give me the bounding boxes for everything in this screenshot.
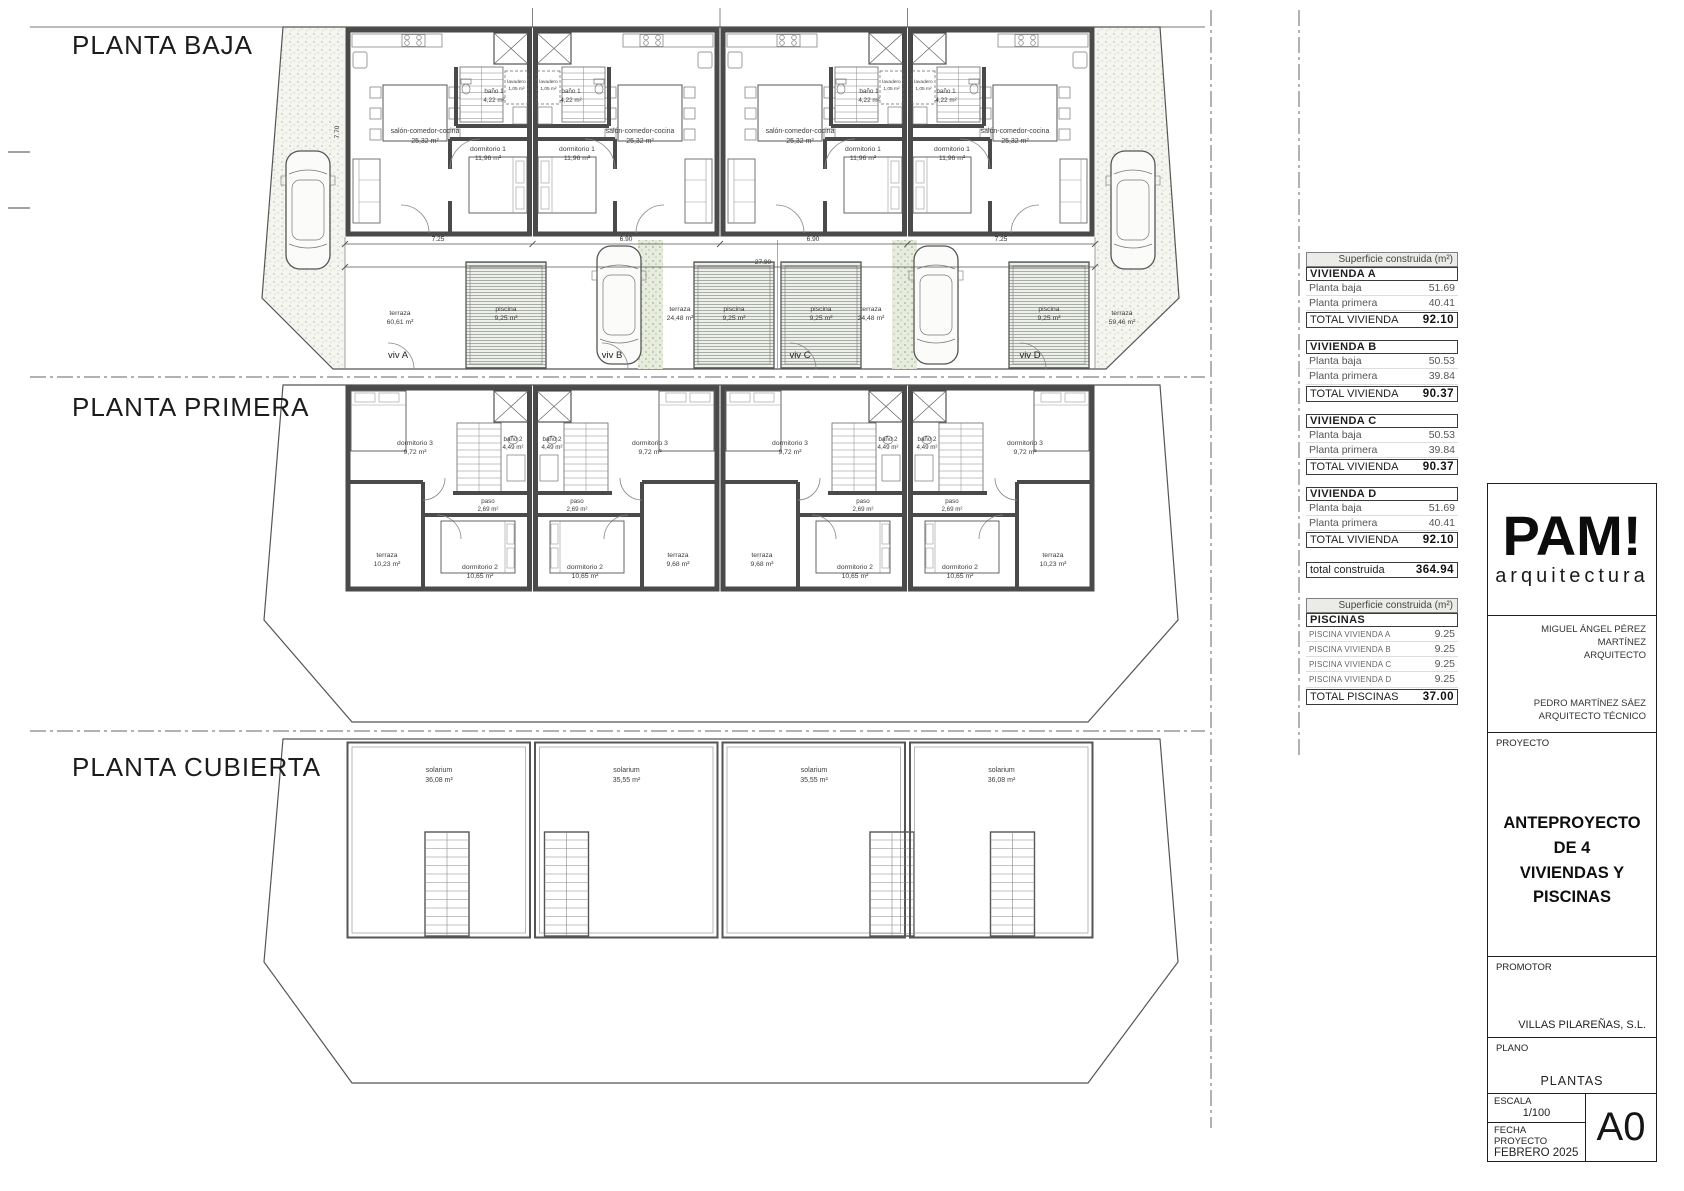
vivienda-title: VIVIENDA B bbox=[1306, 340, 1458, 354]
terraza-area-label: 24,48 m² bbox=[667, 315, 695, 322]
title-block: PAM! arquitectura MIGUEL ÁNGEL PÉREZ MAR… bbox=[1487, 483, 1657, 1162]
area-table-row: Planta primera39.84 bbox=[1306, 443, 1458, 458]
row-value: 51.69 bbox=[1429, 502, 1455, 515]
scale-date-column: ESCALA 1/100 FECHA PROYECTO FEBRERO 2025 bbox=[1488, 1094, 1586, 1161]
fecha-cell: FECHA PROYECTO FEBRERO 2025 bbox=[1488, 1123, 1585, 1161]
room-label: 25,32 m² bbox=[786, 138, 814, 145]
room-label: dormitorio 1 bbox=[559, 146, 595, 153]
room-label: dormitorio 2 bbox=[942, 564, 978, 571]
architect-1: MIGUEL ÁNGEL PÉREZ MARTÍNEZ ARQUITECTO bbox=[1498, 624, 1646, 662]
room-label: dormitorio 2 bbox=[567, 564, 603, 571]
plano-section: PLANO PLANTAS bbox=[1488, 1038, 1656, 1094]
sheet-format: A0 bbox=[1586, 1094, 1656, 1161]
row-value: 39.84 bbox=[1429, 444, 1455, 457]
row-value: 9.25 bbox=[1435, 673, 1455, 686]
room-label: 10,23 m² bbox=[1040, 561, 1068, 568]
promotor-label: PROMOTOR bbox=[1496, 962, 1648, 973]
pool-area-label: 9,25 m² bbox=[809, 315, 833, 322]
proyecto-label: PROYECTO bbox=[1496, 738, 1648, 749]
surface-tables-column: Superficie construida (m²)VIVIENDA APlan… bbox=[1306, 252, 1458, 705]
pam-logo: PAM! bbox=[1503, 511, 1642, 561]
area-table-row: Planta baja50.53 bbox=[1306, 354, 1458, 369]
room-label: terraza bbox=[376, 552, 397, 559]
pam-logo-subtitle: arquitectura bbox=[1495, 565, 1649, 588]
room-label: 9,72 m² bbox=[638, 449, 662, 456]
terraza-label: terraza bbox=[389, 310, 410, 317]
escala-cell: ESCALA 1/100 bbox=[1488, 1094, 1585, 1123]
pool-label: piscina bbox=[1038, 306, 1059, 313]
dimension-label: 7.25 bbox=[995, 236, 1008, 243]
room-label: 25,32 m² bbox=[626, 138, 654, 145]
room-label: 9,68 m² bbox=[750, 561, 774, 568]
viv-label: viv C bbox=[789, 350, 810, 361]
room-label: 9,72 m² bbox=[778, 449, 802, 456]
room-label: 4,49 m² bbox=[878, 444, 899, 451]
room-label: baño 1 bbox=[484, 88, 504, 95]
table-header: Superficie construida (m²) bbox=[1306, 598, 1458, 613]
architect-2-name: PEDRO MARTÍNEZ SÁEZ bbox=[1534, 698, 1646, 711]
piscinas-title: PISCINAS bbox=[1306, 613, 1458, 627]
terraza-label: terraza bbox=[860, 306, 881, 313]
plan-title-cubierta: PLANTA CUBIERTA bbox=[72, 752, 321, 783]
row-value: 50.53 bbox=[1429, 355, 1455, 368]
row-label: Planta primera bbox=[1309, 444, 1377, 457]
plan-title-primera: PLANTA PRIMERA bbox=[72, 392, 309, 423]
row-label: PISCINA VIVIENDA D bbox=[1309, 673, 1391, 686]
room-label: 2,69 m² bbox=[478, 506, 499, 513]
room-label: 4,22 m² bbox=[858, 97, 879, 104]
room-label: 2,69 m² bbox=[853, 506, 874, 513]
room-label: 11,96 m² bbox=[939, 155, 966, 162]
total-piscinas-row: TOTAL PISCINAS37.00 bbox=[1306, 689, 1458, 705]
lawn-strip bbox=[892, 240, 917, 369]
row-label: Planta baja bbox=[1309, 502, 1362, 515]
room-label: 10,65 m² bbox=[842, 573, 870, 580]
logo-section: PAM! arquitectura bbox=[1488, 484, 1656, 616]
room-label: 10,65 m² bbox=[572, 573, 600, 580]
room-label: 9,68 m² bbox=[666, 561, 690, 568]
row-value: 9.25 bbox=[1435, 628, 1455, 641]
room-label: 2,69 m² bbox=[567, 506, 588, 513]
total-label: TOTAL VIVIENDA bbox=[1310, 534, 1398, 546]
dimension-label: 6.90 bbox=[620, 236, 633, 243]
terraza-label: terraza bbox=[1111, 310, 1132, 317]
room-label: 10,65 m² bbox=[467, 573, 495, 580]
room-label: baño 1 bbox=[561, 88, 581, 95]
architects-section: MIGUEL ÁNGEL PÉREZ MARTÍNEZ ARQUITECTO P… bbox=[1488, 616, 1656, 733]
room-label: lavadero bbox=[539, 79, 558, 85]
room-label: 4,49 m² bbox=[503, 444, 524, 451]
room-label: dormitorio 1 bbox=[934, 146, 970, 153]
solarium-area-label: 36,08 m² bbox=[425, 777, 453, 784]
total-construida-row: total construida364.94 bbox=[1306, 562, 1458, 578]
room-label: 10,23 m² bbox=[374, 561, 402, 568]
total-label: TOTAL VIVIENDA bbox=[1310, 388, 1398, 400]
row-value: 9.25 bbox=[1435, 643, 1455, 656]
dimension-label: 7.25 bbox=[432, 236, 445, 243]
room-label: dormitorio 1 bbox=[845, 146, 881, 153]
dimension-label: 7.70 bbox=[334, 125, 341, 138]
total-piscinas-label: TOTAL PISCINAS bbox=[1310, 691, 1398, 703]
car bbox=[281, 151, 335, 269]
architect-2: PEDRO MARTÍNEZ SÁEZ ARQUITECTO TÉCNICO bbox=[1534, 698, 1646, 724]
room-label: 4,22 m² bbox=[560, 97, 581, 104]
architect-1-name: MIGUEL ÁNGEL PÉREZ MARTÍNEZ bbox=[1498, 624, 1646, 650]
room-label: 9,72 m² bbox=[1013, 449, 1037, 456]
terraza-area-label: 59,46 m² bbox=[1109, 319, 1137, 326]
area-table-row: Planta baja51.69 bbox=[1306, 501, 1458, 516]
room-label: 1,05 m² bbox=[883, 86, 900, 92]
room-label: 25,32 m² bbox=[411, 138, 439, 145]
plano-label: PLANO bbox=[1496, 1043, 1648, 1054]
row-label: Planta primera bbox=[1309, 297, 1377, 310]
project-title-line1: ANTEPROYECTO DE 4 bbox=[1496, 811, 1648, 861]
terraza-area-label: 60,61 m² bbox=[387, 319, 415, 326]
plot-outline-cubierta bbox=[264, 739, 1178, 1083]
project-title: ANTEPROYECTO DE 4 VIVIENDAS Y PISCINAS bbox=[1496, 811, 1648, 910]
pool: piscina9,25 m² bbox=[694, 262, 774, 368]
solarium-area-label: 35,55 m² bbox=[613, 777, 641, 784]
room-label: terraza bbox=[751, 552, 772, 559]
dimension-label: 27.90 bbox=[755, 259, 772, 266]
row-label: Planta baja bbox=[1309, 429, 1362, 442]
pool-label: piscina bbox=[495, 306, 516, 313]
room-label: baño 2 bbox=[543, 436, 562, 443]
plano-value: PLANTAS bbox=[1488, 1074, 1656, 1088]
room-label: 4,22 m² bbox=[483, 97, 504, 104]
row-label: Planta baja bbox=[1309, 355, 1362, 368]
total-label: TOTAL VIVIENDA bbox=[1310, 461, 1398, 473]
row-label: PISCINA VIVIENDA B bbox=[1309, 643, 1391, 656]
room-label: 4,49 m² bbox=[542, 444, 563, 451]
room-label: 2,69 m² bbox=[942, 506, 963, 513]
pool-area-label: 9,25 m² bbox=[494, 315, 518, 322]
room-label: terraza bbox=[667, 552, 688, 559]
row-value: 40.41 bbox=[1429, 517, 1455, 530]
room-label: dormitorio 2 bbox=[837, 564, 873, 571]
room-label: dormitorio 2 bbox=[462, 564, 498, 571]
room-label: paso bbox=[481, 498, 495, 505]
room-label: 11,96 m² bbox=[564, 155, 591, 162]
room-label: lavadero bbox=[914, 79, 933, 85]
pool-area-label: 9,25 m² bbox=[722, 315, 746, 322]
fecha-value: FEBRERO 2025 bbox=[1494, 1147, 1579, 1159]
vivienda-total-row: TOTAL VIVIENDA90.37 bbox=[1306, 386, 1458, 402]
area-table-row: Planta primera40.41 bbox=[1306, 296, 1458, 311]
unit-planta-primera-b bbox=[536, 388, 718, 591]
room-label: salón-comedor-cocina bbox=[606, 128, 675, 135]
total-value: 90.37 bbox=[1423, 461, 1454, 473]
vivienda-total-row: TOTAL VIVIENDA92.10 bbox=[1306, 312, 1458, 328]
room-label: 9,72 m² bbox=[403, 449, 427, 456]
solarium-label: solarium bbox=[613, 767, 640, 774]
row-value: 50.53 bbox=[1429, 429, 1455, 442]
total-value: 92.10 bbox=[1423, 534, 1454, 546]
room-label: baño 2 bbox=[504, 436, 523, 443]
room-label: 25,32 m² bbox=[1001, 138, 1029, 145]
room-label: paso bbox=[570, 498, 584, 505]
pool: piscina9,25 m² bbox=[466, 262, 546, 368]
row-value: 39.84 bbox=[1429, 370, 1455, 383]
viv-label: viv A bbox=[388, 350, 409, 361]
scale-date-section: ESCALA 1/100 FECHA PROYECTO FEBRERO 2025… bbox=[1488, 1094, 1656, 1161]
project-title-line2: VIVIENDAS Y PISCINAS bbox=[1496, 861, 1648, 911]
room-label: 1,05 m² bbox=[915, 86, 932, 92]
car bbox=[1106, 151, 1160, 269]
pool-label: piscina bbox=[810, 306, 831, 313]
solarium-area-label: 35,55 m² bbox=[800, 777, 828, 784]
room-label: 4,22 m² bbox=[935, 97, 956, 104]
row-label: Planta primera bbox=[1309, 370, 1377, 383]
room-label: 1,05 m² bbox=[540, 86, 557, 92]
vivienda-total-row: TOTAL VIVIENDA92.10 bbox=[1306, 532, 1458, 548]
row-label: PISCINA VIVIENDA C bbox=[1309, 658, 1391, 671]
car bbox=[909, 246, 963, 364]
total-piscinas-value: 37.00 bbox=[1423, 691, 1454, 703]
architect-2-role: ARQUITECTO TÉCNICO bbox=[1534, 711, 1646, 724]
room-label: paso bbox=[856, 498, 870, 505]
room-label: salón-comedor-cocina bbox=[766, 128, 835, 135]
room-label: baño 2 bbox=[879, 436, 898, 443]
area-table-row: PISCINA VIVIENDA B9.25 bbox=[1306, 642, 1458, 657]
row-value: 40.41 bbox=[1429, 297, 1455, 310]
total-value: 92.10 bbox=[1423, 314, 1454, 326]
viv-label: viv D bbox=[1019, 350, 1040, 361]
room-label: baño 1 bbox=[936, 88, 956, 95]
row-value: 9.25 bbox=[1435, 658, 1455, 671]
promotor-section: PROMOTOR VILLAS PILAREÑAS, S.L. bbox=[1488, 957, 1656, 1038]
solarium-label: solarium bbox=[426, 767, 453, 774]
area-table-row: Planta baja51.69 bbox=[1306, 281, 1458, 296]
row-value: 51.69 bbox=[1429, 282, 1455, 295]
room-label: 10,65 m² bbox=[947, 573, 975, 580]
escala-value: 1/100 bbox=[1494, 1107, 1579, 1119]
pool-label: piscina bbox=[723, 306, 744, 313]
room-label: salón-comedor-cocina bbox=[391, 128, 460, 135]
room-label: 4,49 m² bbox=[917, 444, 938, 451]
row-label: PISCINA VIVIENDA A bbox=[1309, 628, 1390, 641]
lawn-strip bbox=[638, 240, 663, 369]
architect-1-role: ARQUITECTO bbox=[1498, 650, 1646, 663]
room-label: dormitorio 3 bbox=[632, 440, 668, 447]
dimension-label: 6.90 bbox=[807, 236, 820, 243]
room-label: 11,96 m² bbox=[475, 155, 502, 162]
room-label: baño 2 bbox=[918, 436, 937, 443]
total-construida-label: total construida bbox=[1310, 564, 1385, 576]
room-label: dormitorio 3 bbox=[1007, 440, 1043, 447]
room-label: 1,05 m² bbox=[508, 86, 525, 92]
solarium-label: solarium bbox=[801, 767, 828, 774]
room-label: dormitorio 1 bbox=[470, 146, 506, 153]
room-label: lavadero bbox=[882, 79, 901, 85]
terraza-area-label: 24,48 m² bbox=[858, 315, 886, 322]
terraza-label: terraza bbox=[669, 306, 690, 313]
total-value: 90.37 bbox=[1423, 388, 1454, 400]
area-table-row: Planta primera40.41 bbox=[1306, 516, 1458, 531]
total-construida-value: 364.94 bbox=[1416, 564, 1454, 576]
row-label: Planta primera bbox=[1309, 517, 1377, 530]
area-table-row: Planta baja50.53 bbox=[1306, 428, 1458, 443]
car bbox=[592, 246, 646, 364]
proyecto-section: PROYECTO ANTEPROYECTO DE 4 VIVIENDAS Y P… bbox=[1488, 733, 1656, 957]
vivienda-title: VIVIENDA C bbox=[1306, 414, 1458, 428]
viv-label: viv B bbox=[602, 350, 623, 361]
solarium-label: solarium bbox=[988, 767, 1015, 774]
area-table-row: PISCINA VIVIENDA C9.25 bbox=[1306, 657, 1458, 672]
vivienda-total-row: TOTAL VIVIENDA90.37 bbox=[1306, 459, 1458, 475]
escala-label: ESCALA bbox=[1494, 1096, 1579, 1107]
solarium-area-label: 36,08 m² bbox=[988, 777, 1016, 784]
table-header: Superficie construida (m²) bbox=[1306, 252, 1458, 267]
vivienda-title: VIVIENDA A bbox=[1306, 267, 1458, 281]
area-table-row: PISCINA VIVIENDA A9.25 bbox=[1306, 627, 1458, 642]
room-label: terraza bbox=[1042, 552, 1063, 559]
room-label: dormitorio 3 bbox=[397, 440, 433, 447]
room-label: salón-comedor-cocina bbox=[981, 128, 1050, 135]
fecha-label: FECHA PROYECTO bbox=[1494, 1125, 1579, 1147]
row-label: Planta baja bbox=[1309, 282, 1362, 295]
area-table-row: PISCINA VIVIENDA D9.25 bbox=[1306, 672, 1458, 687]
plan-title-baja: PLANTA BAJA bbox=[72, 30, 253, 61]
pool-area-label: 9,25 m² bbox=[1037, 315, 1061, 322]
room-label: paso bbox=[945, 498, 959, 505]
promotor-value: VILLAS PILAREÑAS, S.L. bbox=[1518, 1019, 1646, 1031]
room-label: baño 1 bbox=[859, 88, 879, 95]
room-label: dormitorio 3 bbox=[772, 440, 808, 447]
area-table-row: Planta primera39.84 bbox=[1306, 369, 1458, 384]
vivienda-title: VIVIENDA D bbox=[1306, 487, 1458, 501]
total-label: TOTAL VIVIENDA bbox=[1310, 314, 1398, 326]
room-label: lavadero bbox=[507, 79, 526, 85]
room-label: 11,96 m² bbox=[850, 155, 877, 162]
